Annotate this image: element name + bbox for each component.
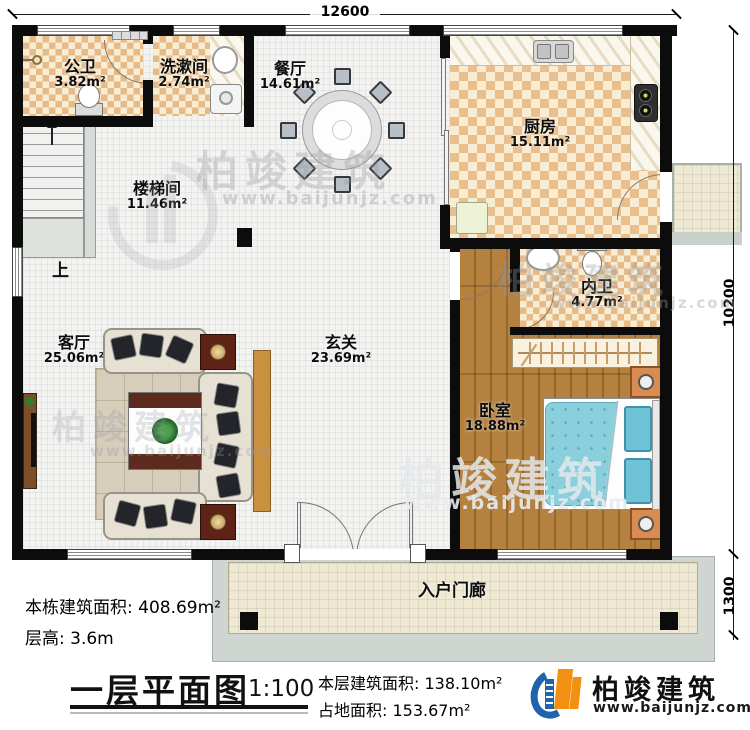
wall-bedroom-left-b bbox=[450, 300, 460, 560]
stairs-up-arrow-stem bbox=[51, 127, 53, 145]
wall-bedroom-left-a bbox=[450, 238, 460, 252]
nightstand-knob bbox=[638, 516, 654, 532]
room-label-ensuite: 内卫4.77m² bbox=[571, 278, 622, 310]
wall-ensuite-bottom bbox=[510, 327, 660, 335]
kitchen-sliding-door-2 bbox=[444, 130, 449, 205]
window-bottom-bedroom bbox=[497, 549, 627, 560]
kitchen-sink-basin-1 bbox=[537, 44, 551, 59]
wall-ensuite-left bbox=[510, 249, 520, 292]
plan-scale: 1:100 bbox=[248, 676, 314, 702]
stairs-up-label: 上 bbox=[52, 256, 69, 281]
sofa-pillow bbox=[215, 472, 242, 499]
stairs-stringer bbox=[84, 122, 96, 258]
entry-door-leaf-left bbox=[297, 502, 301, 548]
wall-right-lower bbox=[660, 222, 672, 560]
towel-ring-bar bbox=[23, 59, 33, 61]
room-label-dining: 餐厅14.61m² bbox=[260, 60, 320, 92]
wall-right-upper bbox=[660, 25, 672, 172]
kitchen-sink-basin-2 bbox=[555, 44, 569, 59]
kitchen-porch-door-opening bbox=[660, 172, 672, 222]
entry-door-frame-right bbox=[410, 544, 426, 563]
bath-shelf bbox=[112, 31, 148, 40]
wall-kitchen-left-b bbox=[440, 205, 450, 238]
porch-pillar-left bbox=[240, 612, 258, 630]
porch-pillar-right bbox=[660, 612, 678, 630]
wardrobe-hangers bbox=[520, 342, 650, 364]
window-top-3 bbox=[285, 25, 410, 36]
brand-logo-icon bbox=[531, 663, 587, 721]
building-total-area: 本栋建筑面积: 408.69m² bbox=[25, 593, 221, 618]
dim-width-total: 12600 bbox=[310, 4, 380, 20]
dining-chair bbox=[388, 122, 405, 139]
brand-website: www.baijunjz.com bbox=[593, 700, 750, 716]
tv bbox=[31, 413, 36, 467]
stairs-landing bbox=[22, 218, 84, 258]
dining-table-center bbox=[332, 120, 352, 140]
floor-height: 层高: 3.6m bbox=[25, 624, 114, 649]
window-top-4 bbox=[443, 25, 623, 36]
sofa-pillow bbox=[143, 504, 169, 530]
footprint-area: 占地面积: 153.67m² bbox=[318, 697, 470, 721]
sofa-pillow bbox=[110, 334, 137, 361]
window-top-2 bbox=[173, 25, 220, 36]
sofa-pillow bbox=[213, 442, 240, 469]
title-underline-2 bbox=[70, 712, 308, 714]
dining-chair bbox=[280, 122, 297, 139]
stove-burner-2 bbox=[639, 104, 652, 117]
wall-kitchen-left-a bbox=[440, 36, 450, 58]
lamp-bottom bbox=[210, 514, 226, 530]
dining-chair bbox=[334, 176, 351, 193]
towel-ring bbox=[32, 55, 42, 65]
stove-burner-1 bbox=[639, 89, 652, 102]
wall-bath-divider-b bbox=[143, 80, 153, 116]
sofa-pillow bbox=[139, 333, 165, 359]
lamp-top bbox=[210, 344, 226, 360]
entry-door-frame-left bbox=[284, 544, 300, 563]
kitchen-sliding-door bbox=[441, 58, 446, 136]
sofa-pillow bbox=[216, 411, 242, 437]
room-label-living: 客厅25.06m² bbox=[44, 334, 104, 366]
room-label-public-bath: 公卫3.82m² bbox=[54, 58, 105, 90]
logo-building-blue bbox=[545, 679, 554, 709]
entry-door-leaf-right bbox=[409, 502, 413, 548]
room-label-porch: 入户门廊 bbox=[418, 582, 486, 601]
tv-plant bbox=[25, 397, 34, 406]
sofa-pillow bbox=[170, 498, 197, 525]
wall-washroom-dining bbox=[244, 25, 254, 127]
watermark-icon-bar bbox=[146, 185, 158, 243]
kitchen-appliance bbox=[456, 202, 488, 234]
washroom-sink bbox=[212, 46, 238, 74]
floor-area: 本层建筑面积: 138.10m² bbox=[318, 670, 502, 694]
floor-plan-page: 公卫3.82m² 洗漱间2.74m² 餐厅14.61m² 厨房15.11m² 楼… bbox=[0, 0, 750, 730]
wall-below-bath bbox=[12, 116, 153, 127]
dim-porch-depth: 1300 bbox=[722, 566, 738, 626]
wall-kitchen-bottom bbox=[440, 238, 672, 249]
room-label-kitchen: 厨房15.11m² bbox=[510, 118, 570, 150]
room-label-foyer: 玄关23.69m² bbox=[311, 334, 371, 366]
bed-pillow-2 bbox=[624, 458, 652, 504]
dim-height-main: 10200 bbox=[722, 268, 738, 338]
title-underline bbox=[70, 705, 308, 709]
table-plant bbox=[152, 418, 178, 444]
room-label-washroom: 洗漱间2.74m² bbox=[158, 58, 209, 90]
console-strip bbox=[253, 350, 271, 512]
room-label-bedroom: 卧室18.88m² bbox=[465, 402, 525, 434]
bed-pillow-1 bbox=[624, 406, 652, 452]
window-left-stair bbox=[12, 247, 23, 297]
sofa-pillow bbox=[213, 382, 240, 409]
stairs bbox=[22, 122, 84, 218]
entry-door-opening bbox=[299, 549, 411, 560]
window-bottom-living bbox=[67, 549, 192, 560]
watermark-icon-bar bbox=[164, 175, 176, 243]
dining-chair bbox=[334, 68, 351, 85]
logo-building-orange-step bbox=[569, 677, 581, 709]
bed-headboard bbox=[652, 400, 660, 510]
center-pillar bbox=[237, 228, 252, 247]
ensuite-toilet-bowl bbox=[582, 251, 602, 276]
washing-machine-door bbox=[219, 91, 233, 105]
side-porch-step bbox=[672, 232, 742, 245]
nightstand-knob bbox=[638, 374, 654, 390]
